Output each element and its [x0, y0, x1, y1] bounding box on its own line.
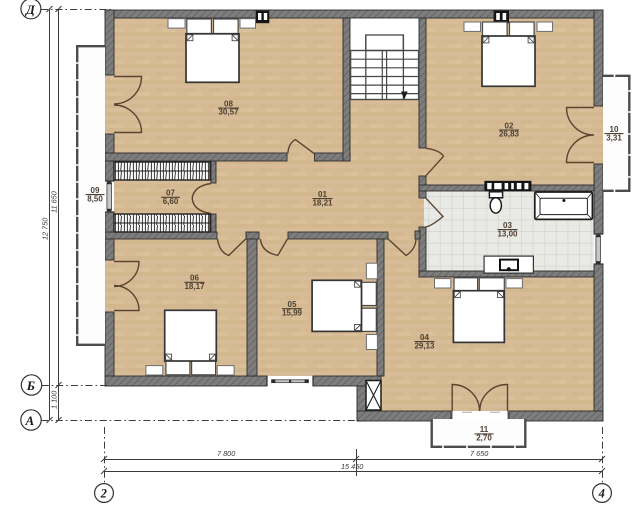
- svg-text:13,00: 13,00: [497, 229, 518, 238]
- svg-text:29,13: 29,13: [414, 341, 435, 350]
- svg-text:1 100: 1 100: [50, 391, 59, 409]
- svg-text:18,17: 18,17: [184, 282, 205, 291]
- svg-text:30,57: 30,57: [218, 108, 239, 117]
- svg-text:Б: Б: [26, 378, 35, 393]
- svg-text:4: 4: [598, 487, 605, 501]
- svg-text:15 450: 15 450: [341, 462, 363, 471]
- svg-text:15,99: 15,99: [282, 308, 303, 317]
- svg-text:7 800: 7 800: [217, 449, 235, 458]
- svg-text:Д: Д: [25, 2, 36, 17]
- svg-text:2,70: 2,70: [476, 434, 492, 443]
- svg-text:18,21: 18,21: [312, 198, 333, 207]
- svg-text:26,83: 26,83: [499, 130, 520, 139]
- svg-text:2: 2: [100, 487, 107, 501]
- svg-text:А: А: [25, 413, 35, 428]
- svg-text:11 650: 11 650: [50, 191, 59, 213]
- svg-text:8,50: 8,50: [87, 194, 103, 203]
- svg-text:6,60: 6,60: [163, 197, 179, 206]
- svg-text:3,31: 3,31: [606, 133, 622, 142]
- svg-text:12 750: 12 750: [41, 218, 50, 240]
- svg-text:7 650: 7 650: [470, 449, 488, 458]
